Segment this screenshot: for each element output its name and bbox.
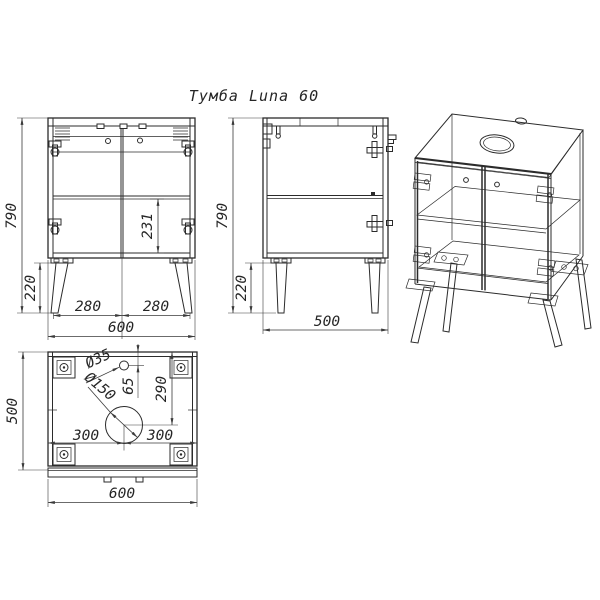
- center-right-label: 300: [146, 428, 173, 444]
- shelf-pin: [371, 192, 375, 196]
- top-carcass: [48, 352, 197, 482]
- side-view: 790 220 500: [215, 118, 396, 334]
- top-dim-width: 600: [48, 479, 197, 507]
- side-legs: [271, 258, 385, 313]
- front-inner-label: 231: [140, 213, 156, 239]
- front-dim-leg-height: 220: [23, 263, 51, 313]
- perspective-view: [406, 114, 591, 347]
- top-dim-large-offset: 290: [154, 352, 172, 425]
- drawing-title: Тумба Luna 60: [189, 87, 319, 105]
- top-depth-label: 500: [5, 398, 21, 424]
- side-leg-height-label: 220: [234, 275, 250, 301]
- knob-3d-left: [464, 178, 469, 183]
- small-offset-label: 65: [121, 377, 137, 394]
- drawing-canvas: Тумба Luna 60: [0, 0, 600, 600]
- top-leg-plates: [53, 357, 192, 465]
- wall-bracket: [388, 135, 396, 140]
- side-dim-leg-height: 220: [234, 263, 271, 313]
- side-hinges: [367, 142, 393, 232]
- front-left-span-label: 280: [75, 299, 101, 315]
- top-view: Ø35 Ø150 65 290 300 300 500: [5, 344, 197, 507]
- front-view: 790 220 231 280 280 600: [4, 118, 195, 340]
- front-width-label: 600: [108, 320, 134, 336]
- top-width-label: 600: [109, 486, 135, 502]
- side-carcass: [263, 118, 396, 258]
- large-offset-label: 290: [154, 376, 170, 402]
- center-left-label: 300: [72, 428, 99, 444]
- side-height-label: 790: [215, 203, 231, 229]
- front-dim-width: 600: [48, 260, 195, 340]
- side-depth-label: 500: [314, 314, 340, 330]
- sink-hole: [479, 133, 515, 155]
- small-hole: [120, 361, 129, 370]
- small-hole-label: Ø35: [83, 347, 114, 373]
- knob-3d-right: [495, 182, 500, 187]
- top-panel-tabs: [97, 124, 146, 129]
- shelf: [417, 187, 580, 230]
- front-height-label: 790: [4, 203, 20, 229]
- technical-drawing: Тумба Luna 60: [0, 0, 600, 600]
- front-legs: [51, 258, 192, 313]
- top-dim-depth: 500: [5, 352, 48, 470]
- overflow-hole: [515, 117, 527, 124]
- front-carcass: [48, 118, 195, 258]
- door-knob-left: [106, 139, 111, 144]
- front-dim-inner: 231: [140, 199, 164, 253]
- front-leg-height-label: 220: [23, 275, 39, 301]
- top-dim-centers: 300 300: [48, 428, 197, 444]
- door-knob-right: [138, 138, 143, 143]
- front-right-span-label: 280: [143, 299, 169, 315]
- large-hole-label: Ø150: [81, 370, 118, 405]
- legs-3d: [406, 252, 591, 347]
